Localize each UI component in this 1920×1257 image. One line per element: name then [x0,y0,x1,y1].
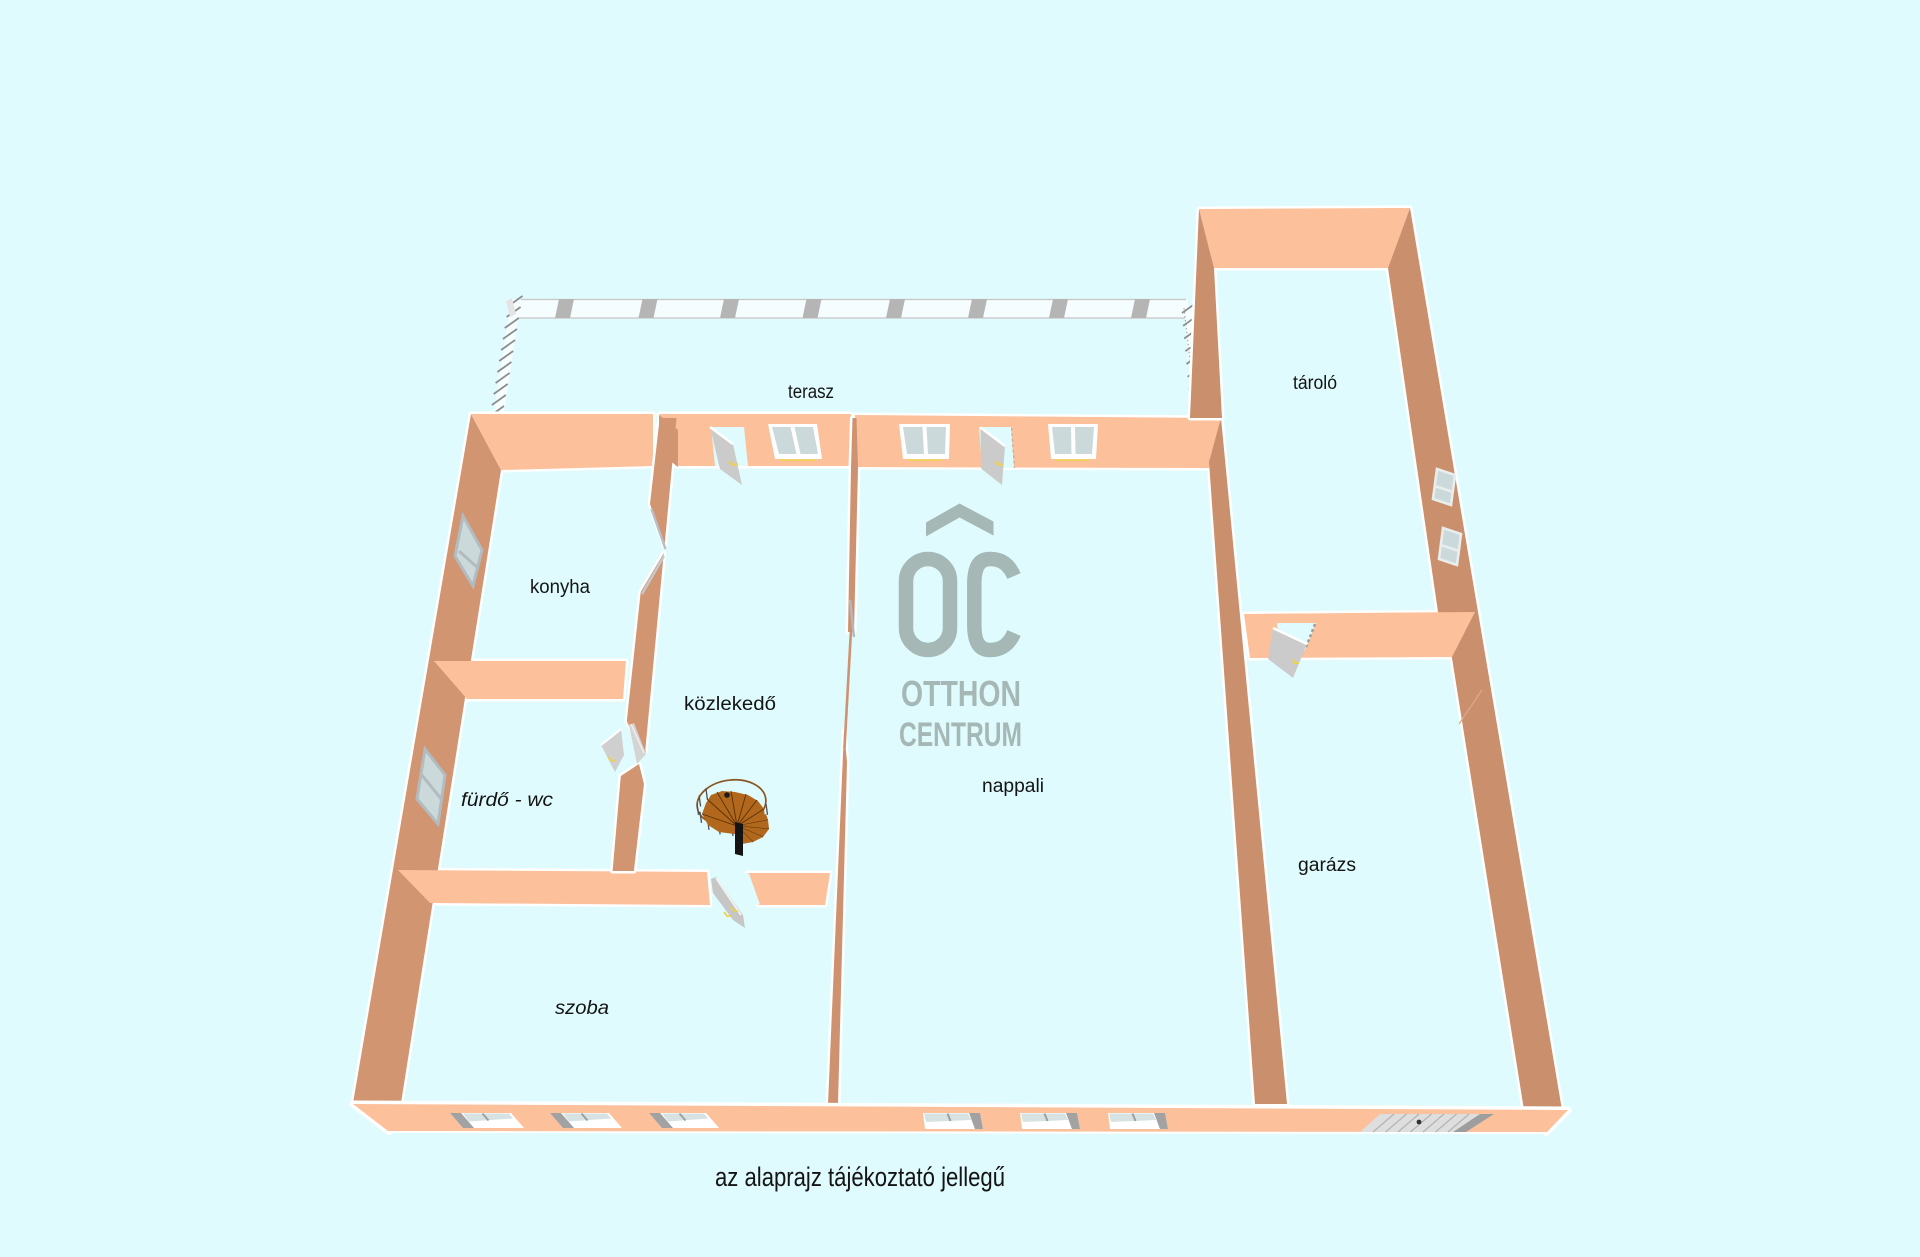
svg-text:CENTRUM: CENTRUM [899,716,1022,754]
svg-text:terasz: terasz [788,382,834,403]
svg-text:szoba: szoba [555,998,609,1019]
svg-text:az alaprajz tájékoztató jelleg: az alaprajz tájékoztató jellegű [715,1162,1005,1192]
svg-text:tároló: tároló [1293,373,1337,394]
svg-text:garázs: garázs [1298,855,1356,876]
svg-text:fürdő - wc: fürdő - wc [461,790,554,811]
svg-text:közlekedő: közlekedő [684,694,776,715]
svg-text:konyha: konyha [530,577,590,598]
svg-text:OTTHON: OTTHON [901,673,1021,714]
svg-text:nappali: nappali [982,776,1044,797]
